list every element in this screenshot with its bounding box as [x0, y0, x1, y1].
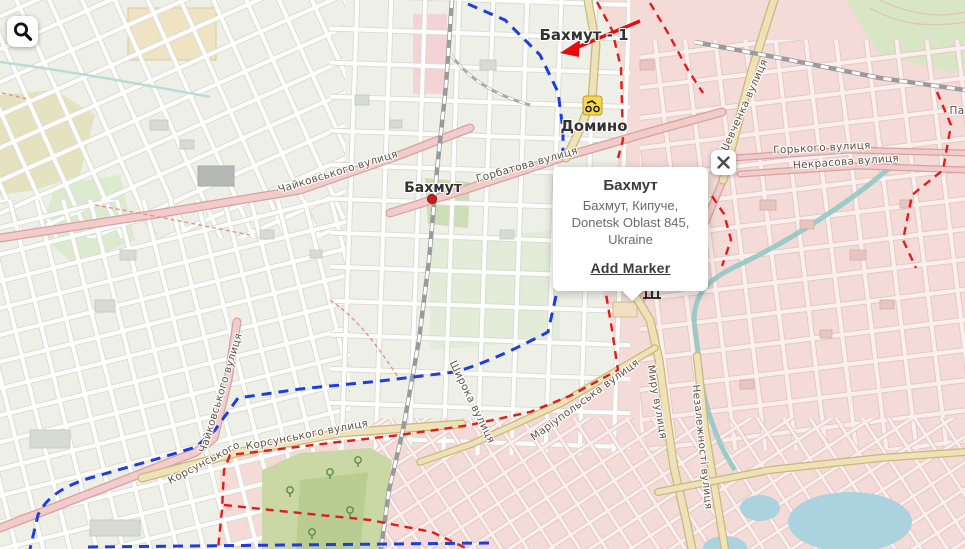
map-canvas[interactable]	[0, 0, 965, 549]
city-dot-marker	[428, 195, 437, 204]
popup-title: Бахмут	[559, 177, 702, 194]
motorcycle-icon	[583, 96, 602, 115]
close-icon	[716, 155, 731, 170]
popup-address-line: Donetsk Oblast 845,	[559, 214, 702, 231]
map-screen: Бахмут - 1ДоминоБахмутЧайковського вулиц…	[0, 0, 965, 549]
add-marker-link[interactable]: Add Marker	[590, 260, 670, 276]
popup-address-line: Ukraine	[559, 231, 702, 248]
popup-close-button[interactable]	[711, 150, 736, 175]
popup-address-line: Бахмут, Кипуче,	[559, 197, 702, 214]
location-popup: Бахмут Бахмут, Кипуче, Donetsk Oblast 84…	[553, 167, 708, 291]
search-button[interactable]	[7, 16, 38, 47]
search-icon	[10, 19, 35, 44]
